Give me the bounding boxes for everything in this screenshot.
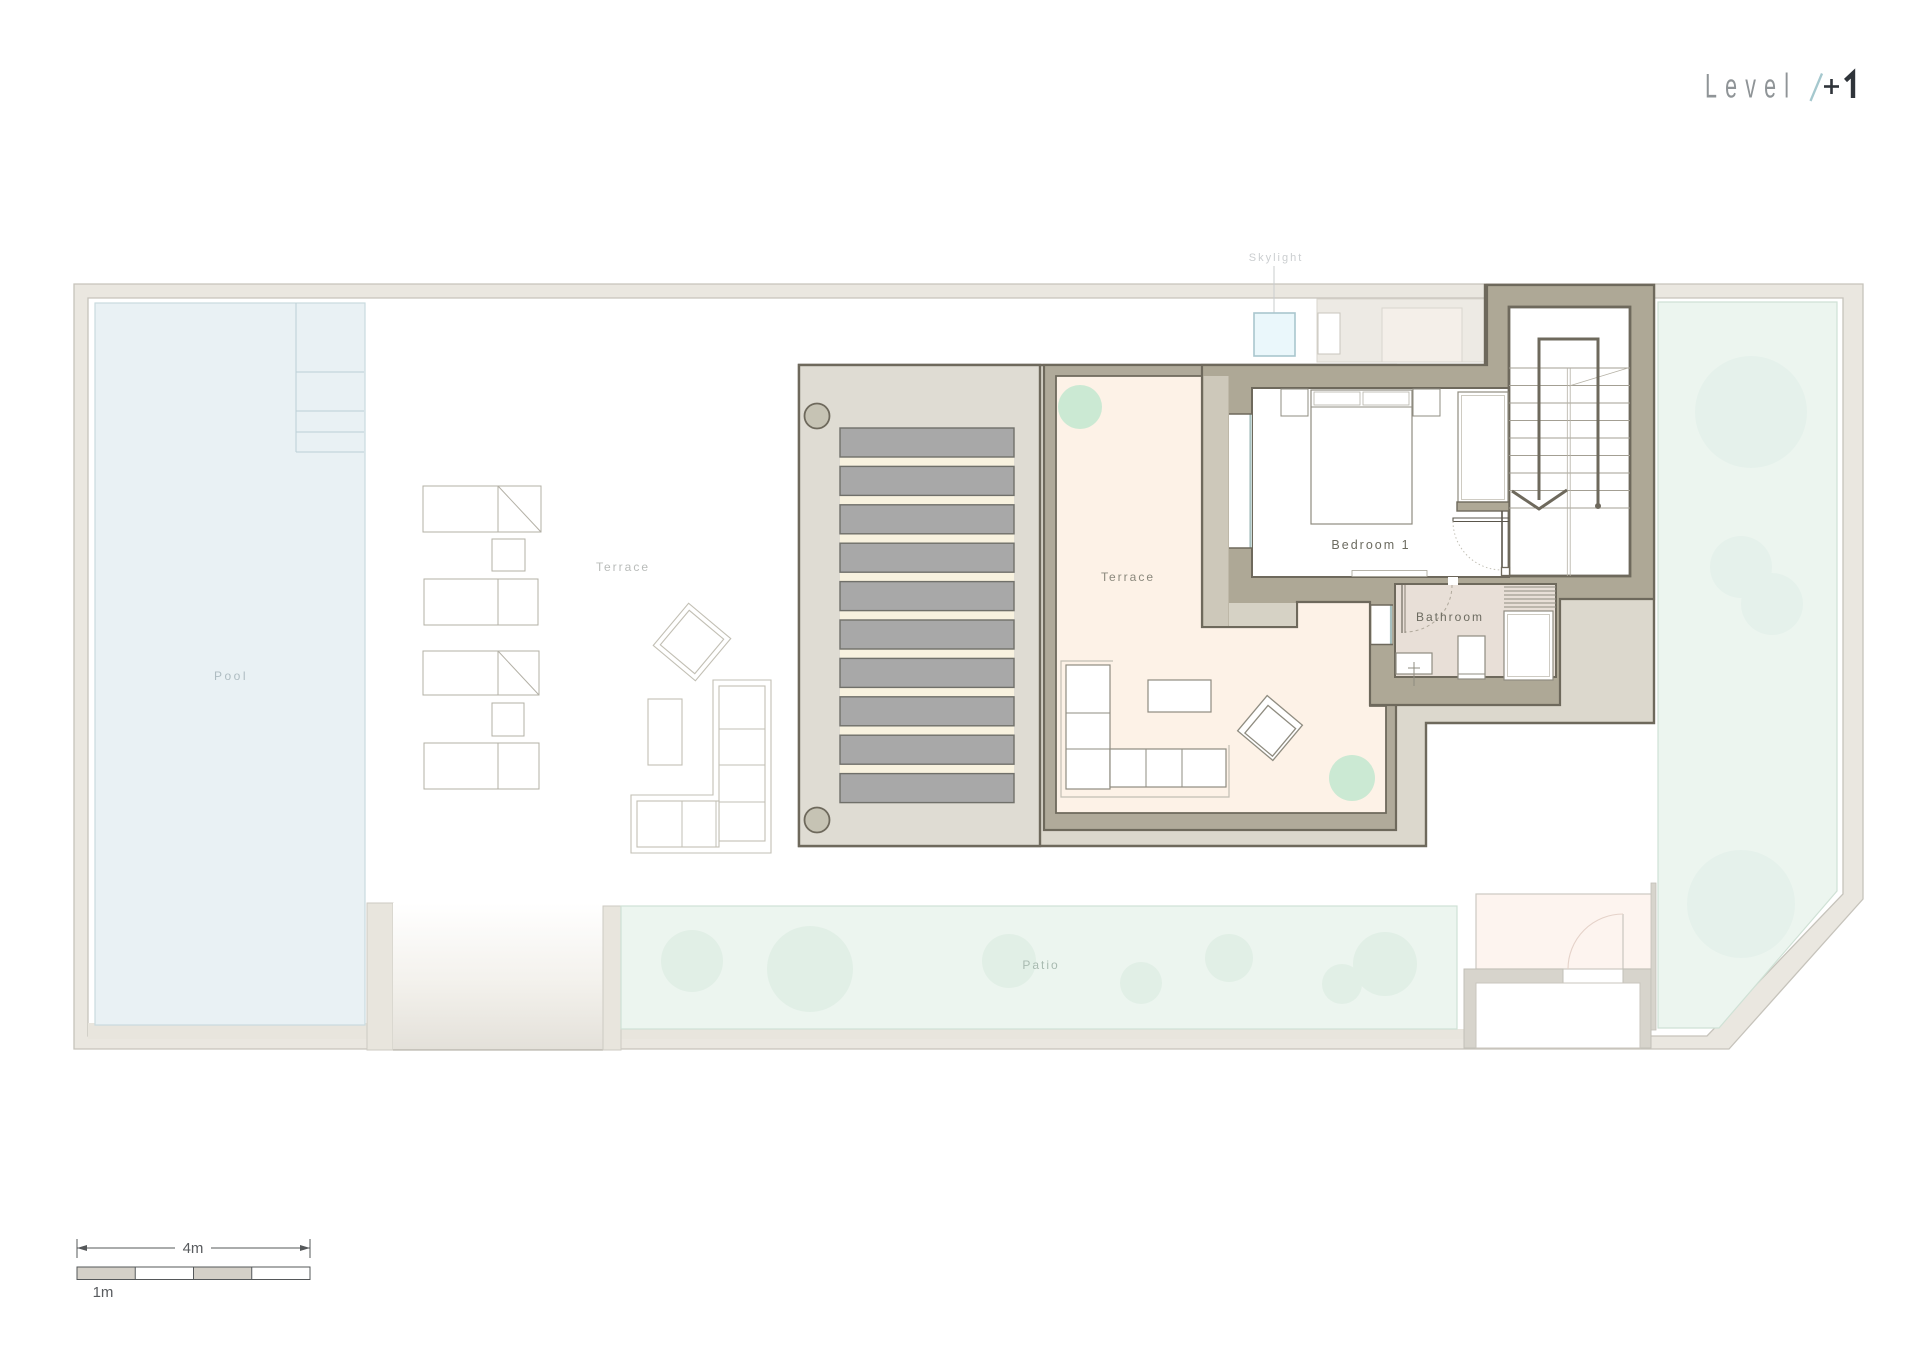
svg-text:Bedroom 1: Bedroom 1 [1331, 538, 1410, 552]
svg-text:1m: 1m [93, 1284, 114, 1301]
svg-text:Patio: Patio [1022, 958, 1059, 972]
svg-text:Terrace: Terrace [1101, 570, 1155, 584]
svg-text:Terrace: Terrace [596, 560, 650, 574]
svg-text:4m: 4m [183, 1240, 204, 1257]
svg-text:Level: Level [1705, 68, 1797, 106]
svg-text:Pool: Pool [214, 669, 248, 683]
svg-text:Bathroom: Bathroom [1416, 610, 1484, 624]
svg-text:Skylight: Skylight [1249, 252, 1304, 264]
